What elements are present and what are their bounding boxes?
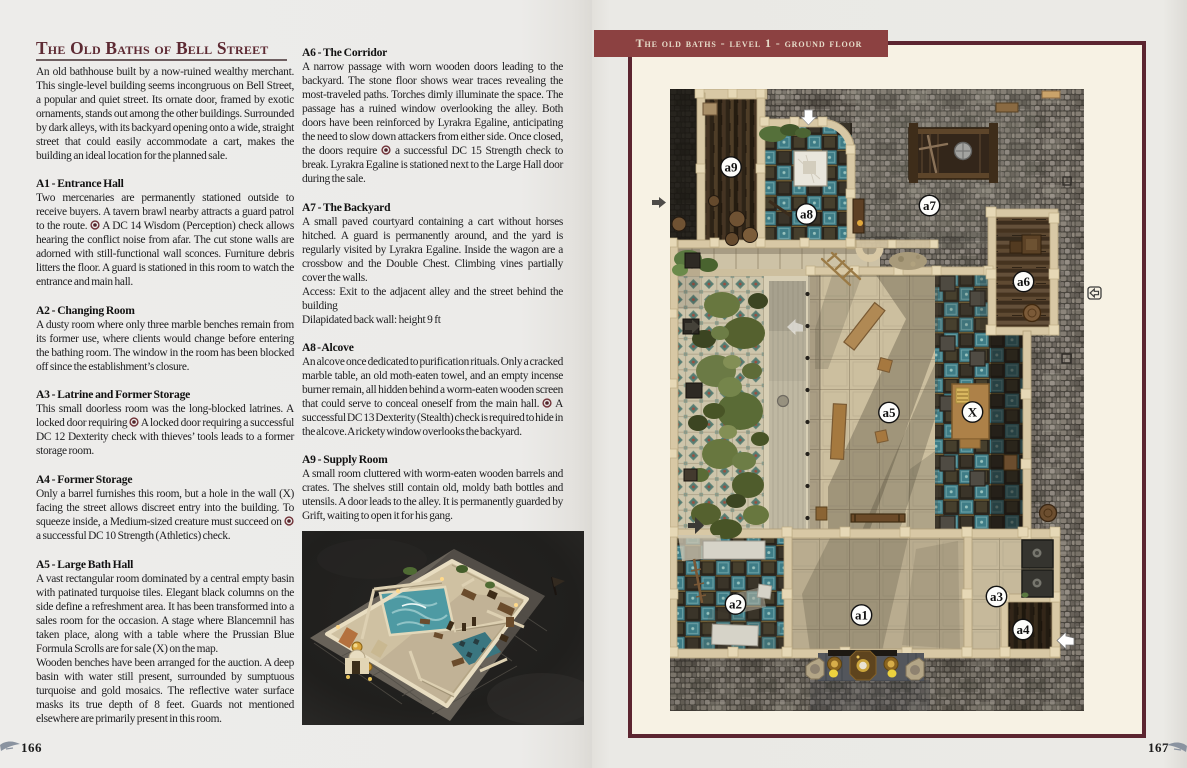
svg-text:a1: a1	[855, 608, 868, 623]
svg-text:a4: a4	[1017, 622, 1031, 637]
svg-text:a6: a6	[1017, 274, 1031, 289]
svg-text:a7: a7	[923, 198, 937, 213]
svg-text:a8: a8	[800, 207, 814, 222]
svg-text:a2: a2	[729, 597, 742, 612]
svg-text:a5: a5	[883, 405, 897, 420]
svg-text:X: X	[968, 405, 978, 420]
svg-text:a9: a9	[725, 160, 739, 175]
svg-text:a3: a3	[990, 589, 1004, 604]
